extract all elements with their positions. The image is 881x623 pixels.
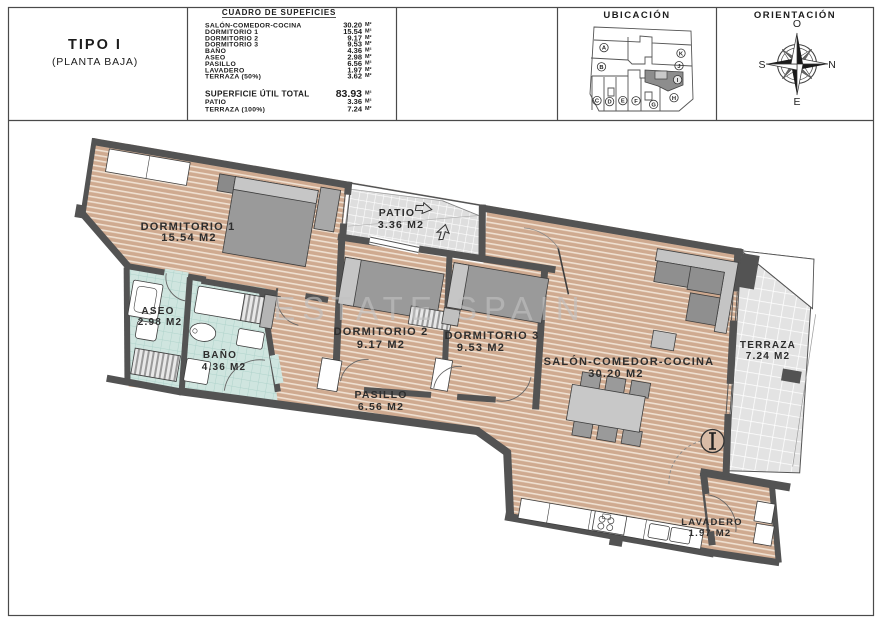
svg-text:PATIO: PATIO — [205, 99, 226, 106]
svg-text:M²: M² — [365, 90, 372, 97]
svg-text:E: E — [793, 96, 800, 108]
svg-text:O: O — [793, 18, 801, 30]
svg-text:M²: M² — [365, 27, 372, 34]
svg-text:M²: M² — [365, 98, 372, 105]
svg-text:TERRAZA: TERRAZA — [740, 340, 796, 351]
svg-text:M²: M² — [365, 105, 372, 112]
svg-text:3.36 M2: 3.36 M2 — [378, 219, 424, 231]
svg-text:B: B — [599, 65, 603, 71]
svg-text:M²: M² — [365, 40, 372, 47]
svg-text:J: J — [677, 64, 680, 70]
svg-text:15.54 M2: 15.54 M2 — [161, 232, 216, 244]
svg-text:PASILLO: PASILLO — [354, 389, 407, 401]
svg-text:LAVADERO: LAVADERO — [681, 517, 743, 528]
svg-text:G: G — [651, 103, 656, 109]
svg-text:7.24 M2: 7.24 M2 — [746, 351, 791, 362]
svg-text:M²: M² — [365, 21, 372, 28]
svg-text:CUADRO DE SUPEFICIES: CUADRO DE SUPEFICIES — [222, 8, 336, 17]
svg-text:PATIO: PATIO — [379, 207, 416, 219]
svg-text:TIPO I: TIPO I — [68, 37, 122, 53]
svg-text:2.98 M2: 2.98 M2 — [138, 317, 183, 328]
svg-text:1.97 M2: 1.97 M2 — [689, 528, 732, 539]
svg-text:7.24: 7.24 — [347, 104, 362, 113]
svg-text:UBICACIÓN: UBICACIÓN — [603, 9, 670, 21]
svg-text:(PLANTA BAJA): (PLANTA BAJA) — [52, 56, 138, 68]
svg-text:30.20 M2: 30.20 M2 — [588, 368, 643, 380]
svg-text:ESTATE SPAIN: ESTATE SPAIN — [273, 290, 586, 327]
svg-text:F: F — [634, 99, 638, 105]
svg-text:M²: M² — [365, 53, 372, 60]
svg-text:M²: M² — [365, 72, 372, 79]
svg-text:M²: M² — [365, 66, 372, 73]
svg-text:SALÓN-COMEDOR-COCINA: SALÓN-COMEDOR-COCINA — [544, 355, 715, 368]
svg-text:9.17 M2: 9.17 M2 — [357, 339, 405, 351]
svg-text:TERRAZA (100%): TERRAZA (100%) — [205, 106, 265, 113]
svg-text:ASEO: ASEO — [141, 306, 174, 317]
svg-text:DORMITORIO 3: DORMITORIO 3 — [445, 330, 540, 342]
svg-text:N: N — [828, 59, 836, 71]
svg-text:SUPERFICIE ÚTIL TOTAL: SUPERFICIE ÚTIL TOTAL — [205, 88, 310, 99]
svg-text:4.36 M2: 4.36 M2 — [202, 362, 247, 373]
svg-text:9.53 M2: 9.53 M2 — [457, 342, 505, 354]
svg-text:E: E — [621, 99, 625, 105]
svg-text:DORMITORIO 2: DORMITORIO 2 — [334, 326, 429, 338]
svg-text:M²: M² — [365, 59, 372, 66]
svg-text:M²: M² — [365, 47, 372, 54]
svg-text:S: S — [758, 59, 765, 71]
svg-text:M²: M² — [365, 34, 372, 41]
svg-text:H: H — [672, 96, 676, 102]
svg-text:BAÑO: BAÑO — [203, 348, 237, 361]
svg-text:3.62: 3.62 — [347, 72, 362, 81]
svg-text:TERRAZA (50%): TERRAZA (50%) — [205, 74, 261, 81]
svg-text:D: D — [608, 100, 612, 106]
svg-text:6.56 M2: 6.56 M2 — [358, 401, 404, 413]
